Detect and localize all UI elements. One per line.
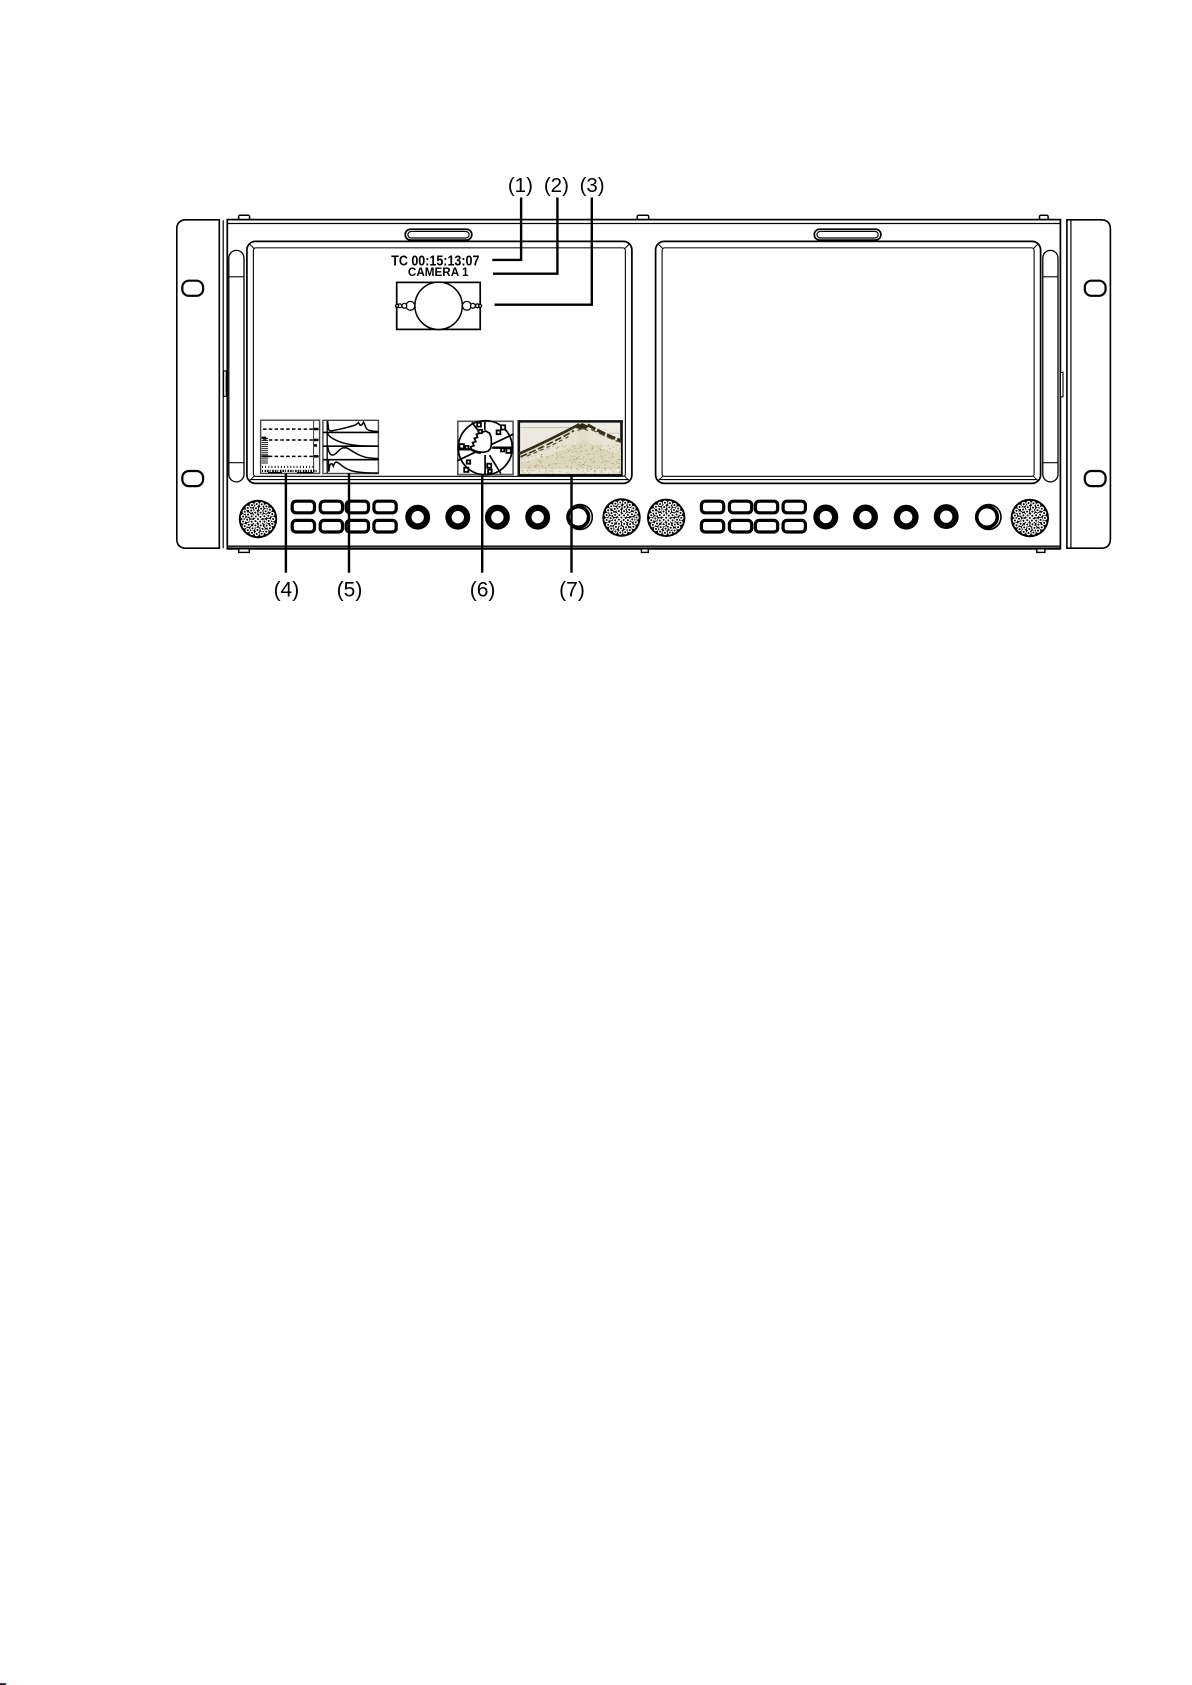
svg-text:(5): (5) bbox=[337, 578, 363, 601]
svg-text:CAMERA 1: CAMERA 1 bbox=[408, 265, 469, 279]
svg-text:(6): (6) bbox=[470, 578, 496, 601]
svg-text:(4): (4) bbox=[274, 578, 300, 601]
svg-text:(2): (2) bbox=[544, 174, 569, 197]
svg-text:(1): (1) bbox=[508, 174, 533, 197]
svg-text:(7): (7) bbox=[559, 578, 585, 601]
svg-text:(3): (3) bbox=[580, 174, 605, 197]
